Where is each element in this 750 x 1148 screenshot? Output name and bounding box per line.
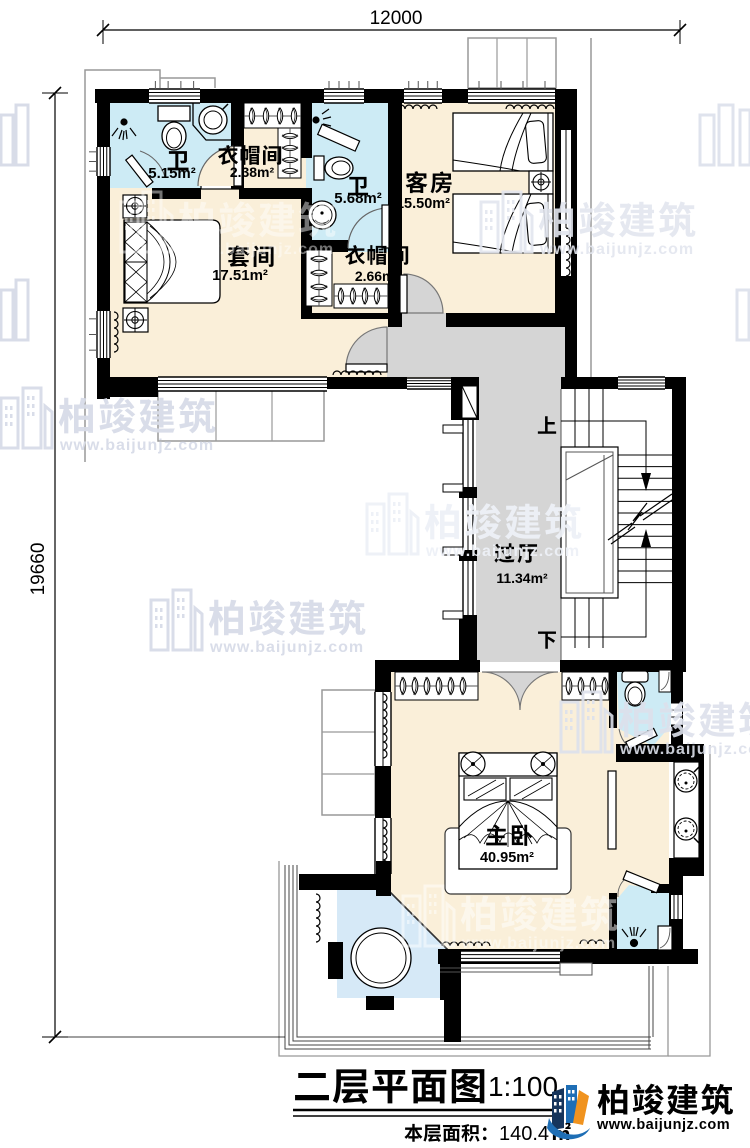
svg-text:140.4: 140.4 bbox=[499, 1123, 549, 1145]
svg-text:5.15m²: 5.15m² bbox=[148, 165, 196, 182]
svg-text:40.95m²: 40.95m² bbox=[480, 850, 534, 866]
svg-text:19660: 19660 bbox=[28, 543, 49, 596]
svg-text:11.34m²: 11.34m² bbox=[496, 570, 548, 586]
svg-text:15.50m²: 15.50m² bbox=[396, 196, 450, 212]
svg-text:5.68m²: 5.68m² bbox=[334, 190, 382, 207]
svg-text:2.66m²: 2.66m² bbox=[355, 268, 400, 284]
svg-text:2.38m²: 2.38m² bbox=[230, 164, 275, 180]
svg-text:www.baijunjz.com: www.baijunjz.com bbox=[596, 1117, 730, 1133]
svg-text:1:100: 1:100 bbox=[488, 1071, 558, 1102]
svg-text:12000: 12000 bbox=[370, 8, 423, 29]
svg-text:17.51m²: 17.51m² bbox=[212, 267, 268, 284]
